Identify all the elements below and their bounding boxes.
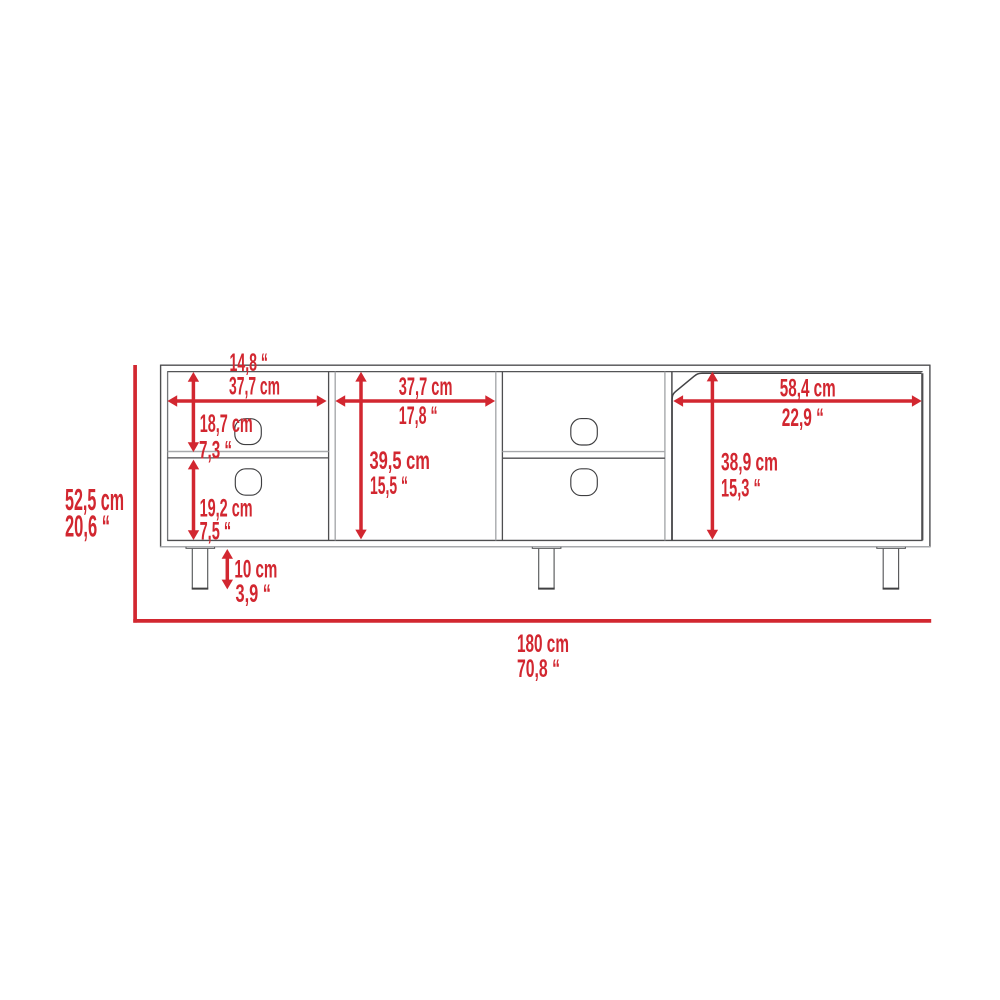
svg-text:180 cm: 180 cm [517, 630, 569, 658]
svg-text:39,5 cm: 39,5 cm [370, 448, 430, 475]
svg-text:3,9 “: 3,9 “ [236, 581, 271, 608]
svg-text:18,7 cm: 18,7 cm [200, 411, 253, 438]
svg-text:58,4 cm: 58,4 cm [780, 375, 836, 403]
svg-text:37,7 cm: 37,7 cm [399, 373, 453, 401]
svg-text:17,8 “: 17,8 “ [399, 403, 438, 430]
svg-text:10 cm: 10 cm [234, 556, 277, 584]
svg-text:22,9 “: 22,9 “ [782, 404, 824, 432]
svg-text:37,7 cm: 37,7 cm [229, 373, 280, 400]
svg-text:20,6 “: 20,6 “ [65, 510, 110, 544]
svg-text:15,5 “: 15,5 “ [370, 473, 408, 500]
svg-text:15,3 “: 15,3 “ [721, 475, 761, 503]
svg-text:70,8 “: 70,8 “ [517, 655, 560, 683]
svg-text:7,3 “: 7,3 “ [199, 437, 232, 465]
svg-text:38,9 cm: 38,9 cm [721, 449, 778, 477]
svg-text:7,5 “: 7,5 “ [200, 517, 231, 545]
